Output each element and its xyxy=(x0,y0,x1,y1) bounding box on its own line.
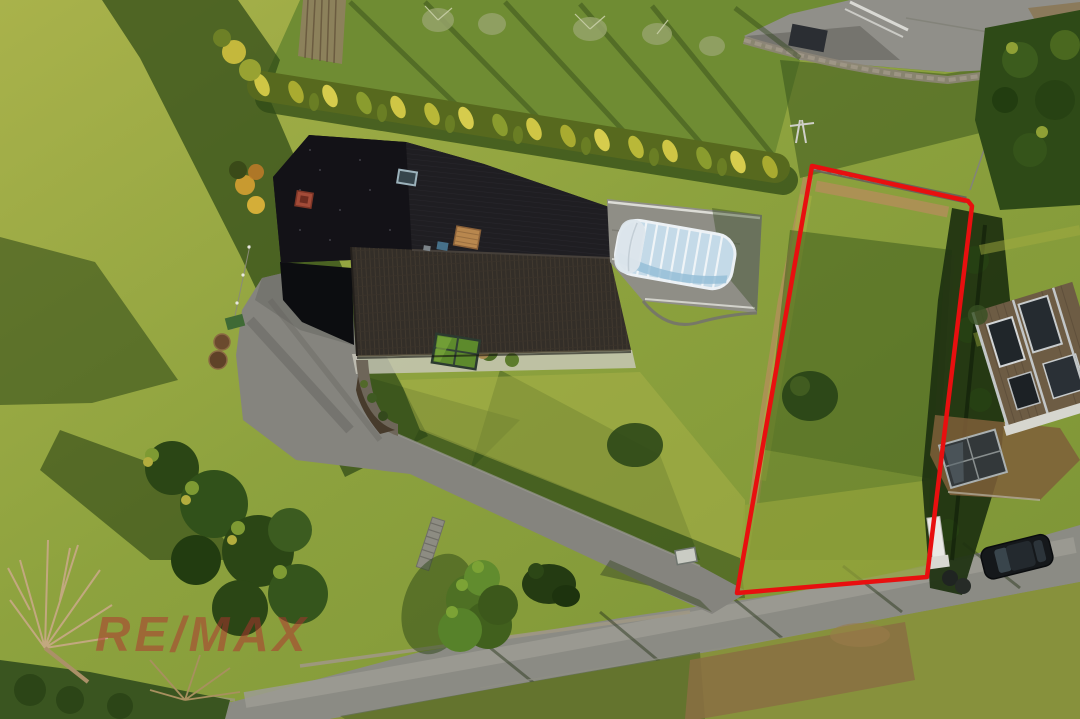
aerial-photo-canvas: RE/MAX xyxy=(0,0,1080,719)
planter-pot xyxy=(214,334,230,350)
dark-bush xyxy=(607,423,663,467)
round-bush xyxy=(782,371,838,421)
watermark-text: RE/MAX xyxy=(95,608,310,662)
waste-bin xyxy=(955,578,971,594)
glazed-atrium xyxy=(432,334,480,370)
skylight xyxy=(397,170,417,186)
wooden-roof-box xyxy=(454,226,481,249)
planter-pot xyxy=(209,351,227,369)
mailbox xyxy=(675,547,697,564)
flat-roof-section xyxy=(273,135,412,263)
solar-panel xyxy=(436,241,448,251)
aerial-photo: RE/MAX xyxy=(0,0,1080,719)
chimney xyxy=(295,191,313,208)
orange-shrub xyxy=(248,164,264,180)
